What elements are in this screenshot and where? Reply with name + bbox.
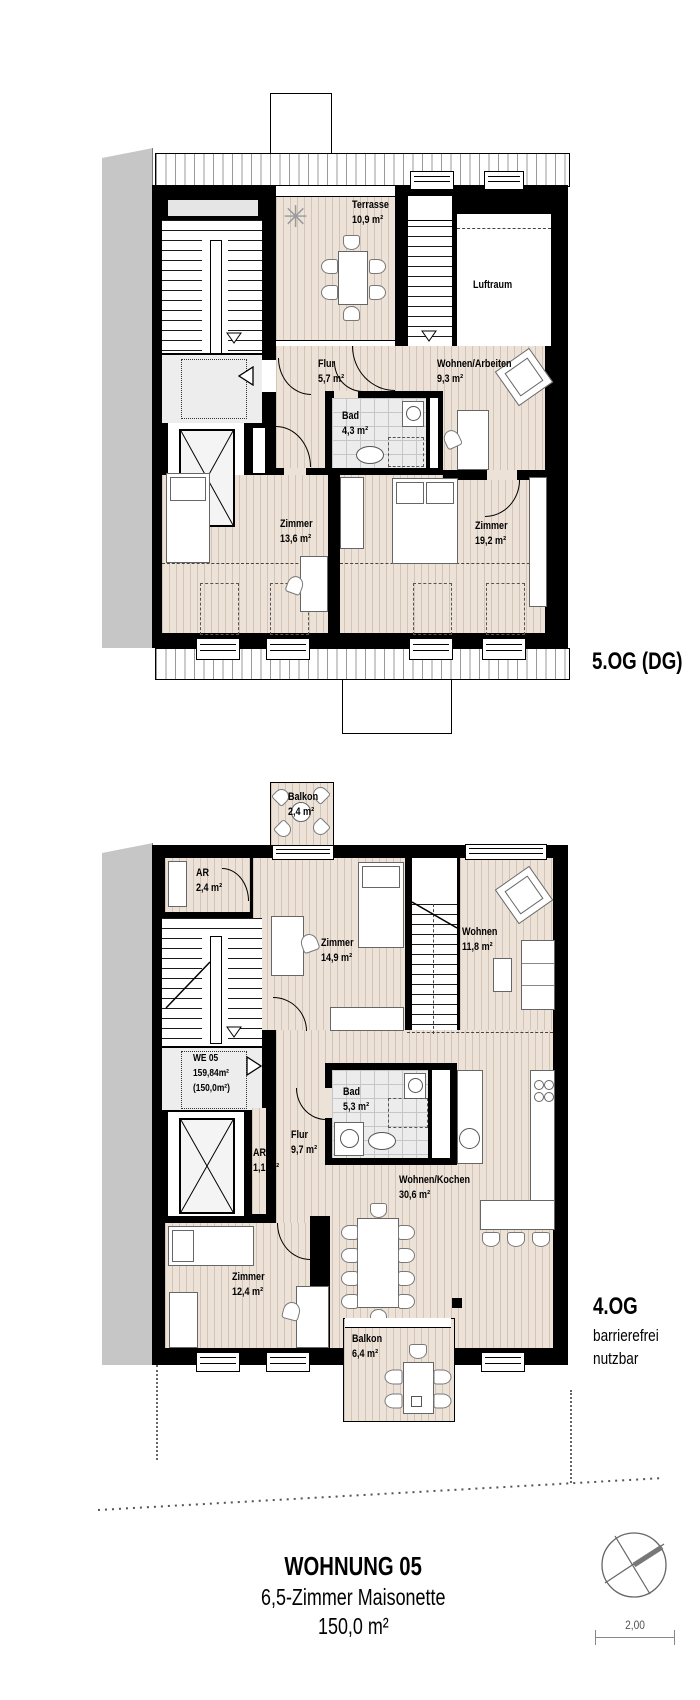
entry-arrow-right-icon bbox=[246, 1056, 262, 1076]
chair-icon bbox=[398, 1225, 415, 1240]
coffee-table bbox=[493, 958, 512, 992]
room-label-wohnen: Wohnen11,8 m² bbox=[462, 925, 497, 954]
shaft-slot-1 bbox=[252, 427, 266, 474]
chair-icon bbox=[398, 1294, 415, 1309]
room-label-zimmer-4: Zimmer12,4 m² bbox=[232, 1270, 265, 1299]
window-line bbox=[414, 181, 450, 182]
toilet bbox=[356, 446, 384, 464]
apartment-subtitle: 6,5-Zimmer Maisonette bbox=[103, 1584, 603, 1611]
terrace-table bbox=[338, 251, 368, 305]
stair-direction-arrow bbox=[226, 1026, 242, 1038]
bar-stool bbox=[482, 1232, 500, 1247]
room-label-balkon-bottom: Balkon6,4 m² bbox=[352, 1332, 382, 1361]
washing-machine-drum bbox=[340, 1129, 359, 1148]
shower-outline bbox=[388, 437, 424, 467]
sofa bbox=[521, 940, 555, 1010]
window-line bbox=[270, 1357, 306, 1358]
cooktop-burner bbox=[544, 1080, 554, 1090]
window-line bbox=[488, 181, 520, 182]
chair-icon bbox=[369, 259, 386, 274]
maisonette-stair-landing bbox=[408, 196, 452, 221]
door-opening bbox=[284, 468, 306, 475]
dormer-outline bbox=[486, 583, 525, 635]
window bbox=[196, 1352, 240, 1372]
terrace-edge-top bbox=[276, 185, 395, 197]
cooktop-burner bbox=[534, 1092, 544, 1102]
neighbor-building-lower bbox=[102, 843, 153, 1365]
room-label-flur-upper: Flur5,7 m² bbox=[318, 357, 344, 386]
bar-stool bbox=[507, 1232, 525, 1247]
door-opening bbox=[334, 391, 358, 398]
window-line bbox=[276, 849, 330, 850]
dormer-outline bbox=[413, 583, 452, 635]
chair-icon bbox=[398, 1271, 415, 1286]
balcony-door bbox=[272, 845, 334, 860]
window-line bbox=[485, 1357, 521, 1358]
desk bbox=[457, 410, 489, 470]
window bbox=[410, 171, 454, 190]
site-boundary-line bbox=[156, 1365, 158, 1460]
scale-tick bbox=[595, 1630, 596, 1645]
toilet bbox=[368, 1132, 396, 1150]
window-line bbox=[485, 1363, 521, 1364]
cooktop-burner bbox=[534, 1080, 544, 1090]
chimney-outline bbox=[270, 93, 332, 157]
chair-icon bbox=[369, 285, 386, 300]
room-label-bad-upper: Bad4,3 m² bbox=[342, 409, 368, 438]
chair-icon bbox=[341, 1248, 358, 1263]
wall-segment bbox=[328, 475, 340, 633]
floor-plan-sheet: ✳ Terrasse10,9 m² Luftraum bbox=[0, 0, 700, 1700]
window-line bbox=[200, 1357, 236, 1358]
wall-segment bbox=[457, 858, 460, 930]
scale-label: 2,00 bbox=[601, 1618, 669, 1632]
kitchen-counter bbox=[457, 1070, 483, 1164]
dormer-outline bbox=[200, 583, 239, 635]
site-boundary-line bbox=[570, 1390, 572, 1483]
window-line bbox=[469, 853, 543, 854]
window-line bbox=[414, 176, 450, 177]
balcony-door-band bbox=[345, 1318, 451, 1328]
stair-cut-line bbox=[164, 958, 212, 1010]
bath-niche bbox=[432, 1070, 450, 1158]
balcony-table-item bbox=[411, 1396, 422, 1407]
chair-icon bbox=[398, 1248, 415, 1263]
room-label-luftraum: Luftraum bbox=[473, 278, 512, 293]
window-line bbox=[469, 848, 543, 849]
neighbor-building-upper bbox=[102, 148, 153, 648]
bed-pillow bbox=[170, 477, 206, 501]
sink-bowl bbox=[406, 406, 421, 421]
window-line bbox=[413, 644, 449, 645]
door-opening bbox=[325, 1088, 332, 1118]
chair-icon bbox=[370, 1203, 387, 1218]
window bbox=[196, 638, 240, 660]
scale-line bbox=[595, 1637, 675, 1638]
elevator-car-lower bbox=[179, 1118, 235, 1214]
room-label-flur-2: Flur9,7 m² bbox=[291, 1128, 317, 1157]
window bbox=[484, 171, 524, 190]
stair-direction-arrow bbox=[421, 330, 437, 342]
bed-pillow bbox=[172, 1230, 194, 1262]
kitchen-island bbox=[480, 1200, 555, 1230]
chair-icon bbox=[343, 306, 360, 321]
window bbox=[481, 1352, 525, 1372]
wardrobe bbox=[330, 1007, 404, 1031]
chair-icon bbox=[343, 235, 360, 250]
plant-icon: ✳ bbox=[283, 203, 308, 233]
room-label-terrasse: Terrasse10,9 m² bbox=[352, 198, 389, 227]
scale-tick bbox=[674, 1630, 675, 1645]
room-label-wohnen-arbeiten: Wohnen/Arbeiten9,3 m² bbox=[437, 357, 512, 386]
cabinet bbox=[169, 1292, 198, 1348]
window-line bbox=[486, 650, 522, 651]
unit-entrance-label: WE 05159,84m²(150,0m²) bbox=[193, 1051, 230, 1097]
armchair-seat bbox=[505, 876, 544, 915]
shower-outline bbox=[388, 1098, 428, 1128]
sink-bowl bbox=[408, 1078, 423, 1093]
window-line bbox=[276, 853, 330, 854]
chair-icon bbox=[341, 1225, 358, 1240]
chair-icon bbox=[385, 1370, 403, 1385]
wardrobe bbox=[340, 477, 364, 549]
stair-cut-line bbox=[412, 898, 457, 932]
site-boundary-diagonal bbox=[98, 1474, 664, 1514]
apartment-area: 150,0 m² bbox=[103, 1613, 603, 1640]
room-label-ar-1: AR2,4 m² bbox=[196, 866, 222, 895]
floor-sublabel-2: nutzbar bbox=[593, 1349, 638, 1369]
sink bbox=[402, 401, 424, 427]
chair-icon bbox=[341, 1294, 358, 1309]
kitchen-counter bbox=[530, 1070, 555, 1204]
chair-icon bbox=[409, 1344, 427, 1359]
floor-sublabel-1: barrierefrei bbox=[593, 1326, 659, 1346]
bed-pillow bbox=[426, 482, 454, 504]
north-arrow-icon bbox=[600, 1531, 668, 1599]
chair-icon bbox=[434, 1370, 452, 1385]
sink bbox=[404, 1073, 426, 1099]
cabinet bbox=[168, 861, 187, 907]
chair-icon bbox=[385, 1394, 403, 1409]
chair-icon bbox=[341, 1271, 358, 1286]
window-line bbox=[413, 650, 449, 651]
floor-label-upper: 5.OG (DG) bbox=[592, 648, 682, 676]
window bbox=[482, 638, 526, 660]
sofa-cushion-line bbox=[522, 985, 554, 986]
door-opening bbox=[487, 470, 517, 480]
open-plan-boundary bbox=[407, 1032, 553, 1033]
desk bbox=[271, 916, 304, 976]
window-line bbox=[270, 650, 306, 651]
kitchen-sink-round bbox=[459, 1128, 480, 1149]
void-dashed-line bbox=[457, 228, 551, 229]
elevator-x-icon bbox=[181, 1120, 233, 1212]
wardrobe bbox=[529, 477, 547, 607]
window bbox=[465, 844, 547, 860]
room-label-bad-2: Bad5,3 m² bbox=[343, 1085, 369, 1114]
cooktop-burner bbox=[544, 1092, 554, 1102]
window-line bbox=[270, 1363, 306, 1364]
entry-arrow-left-icon bbox=[238, 366, 254, 386]
window-line bbox=[200, 1363, 236, 1364]
apartment-title: WOHNUNG 05 bbox=[103, 1551, 603, 1582]
bath-niche bbox=[430, 398, 438, 468]
window-line bbox=[486, 644, 522, 645]
room-label-balkon-top: Balkon2,4 m² bbox=[288, 790, 318, 819]
sofa-cushion-line bbox=[522, 963, 554, 964]
dining-table bbox=[357, 1218, 399, 1308]
stairwell-window-slot bbox=[167, 199, 259, 217]
desk bbox=[296, 1286, 329, 1348]
chair-icon bbox=[321, 259, 338, 274]
door-opening bbox=[262, 360, 276, 392]
stair-spine-rail bbox=[210, 240, 222, 354]
window-line bbox=[270, 644, 306, 645]
room-label-zimmer-2: Zimmer19,2 m² bbox=[475, 519, 508, 548]
roof-extension-outline bbox=[342, 678, 452, 734]
room-label-ar-2: AR1,1 m² bbox=[253, 1146, 279, 1175]
stair-direction-arrow bbox=[226, 332, 242, 344]
room-label-zimmer-1: Zimmer13,6 m² bbox=[280, 517, 313, 546]
window-line bbox=[200, 650, 236, 651]
column bbox=[452, 1298, 462, 1308]
window bbox=[266, 1352, 310, 1372]
window-line bbox=[488, 176, 520, 177]
window bbox=[409, 638, 453, 660]
room-label-zimmer-3: Zimmer14,9 m² bbox=[321, 936, 354, 965]
floor-label-lower: 4.OG bbox=[593, 1293, 638, 1321]
bar-stool bbox=[532, 1232, 550, 1247]
desk bbox=[300, 556, 328, 612]
stair-edge-line bbox=[162, 1046, 262, 1047]
chair-icon bbox=[434, 1394, 452, 1409]
bed-pillow bbox=[396, 482, 424, 504]
bed-pillow bbox=[362, 866, 400, 888]
stair-edge-line bbox=[162, 353, 262, 354]
window bbox=[266, 638, 310, 660]
washing-machine bbox=[334, 1122, 364, 1156]
chair-icon bbox=[321, 285, 338, 300]
window-line bbox=[200, 644, 236, 645]
room-label-wohnen-kochen: Wohnen/Kochen30,6 m² bbox=[399, 1173, 470, 1202]
